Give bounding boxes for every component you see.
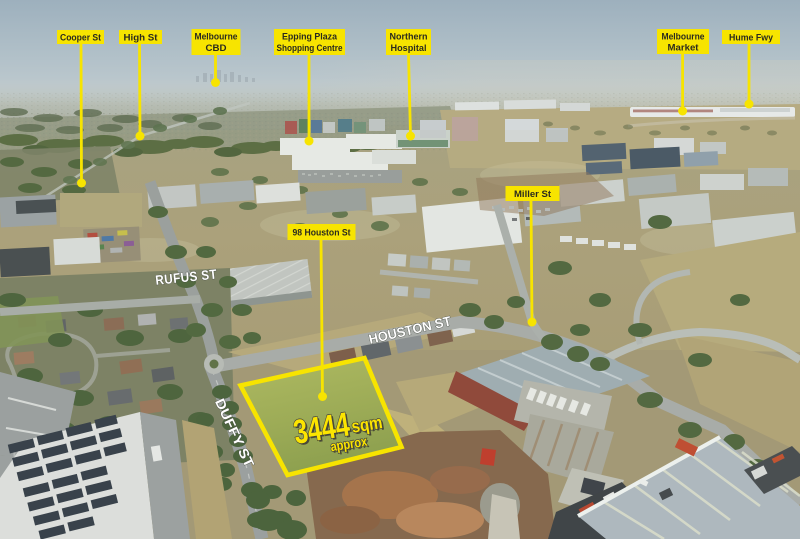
svg-text:98 Houston St: 98 Houston St (293, 227, 352, 238)
svg-text:CBD: CBD (206, 43, 227, 54)
svg-text:Epping Plaza: Epping Plaza (282, 32, 338, 43)
svg-text:Melbourne: Melbourne (662, 32, 705, 43)
svg-text:Melbourne: Melbourne (195, 32, 238, 43)
svg-text:Shopping Centre: Shopping Centre (277, 43, 343, 54)
svg-text:Cooper St: Cooper St (60, 32, 102, 43)
svg-text:Hospital: Hospital (391, 43, 427, 54)
svg-text:Hume Fwy: Hume Fwy (729, 32, 774, 43)
svg-text:Market: Market (668, 43, 700, 54)
svg-text:Northern: Northern (390, 32, 428, 43)
svg-text:Miller St: Miller St (514, 189, 552, 200)
svg-text:High St: High St (124, 32, 159, 43)
